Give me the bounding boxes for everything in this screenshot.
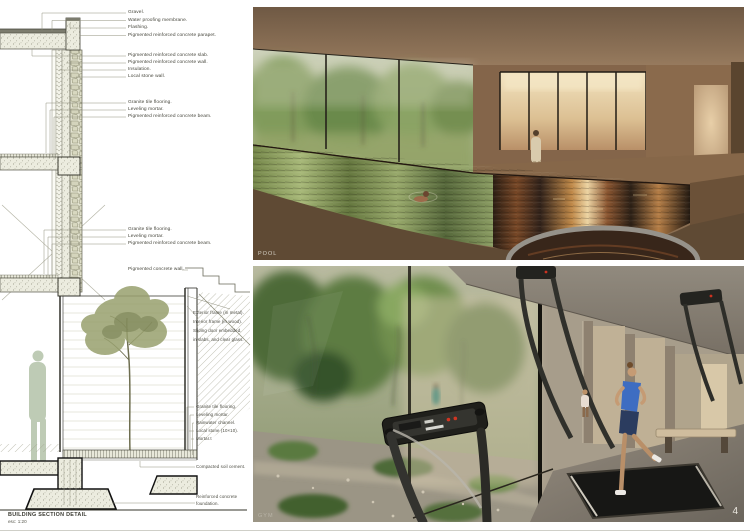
annotation-label: Interior frame (in wood).: [193, 320, 242, 324]
annotation-label: Pigmented concrete wall.: [128, 268, 184, 273]
presentation-sheet: Gravel. Water proofing membrane. Flashin…: [0, 0, 750, 531]
drawing-title: BUILDING SECTION DETAIL: [8, 512, 87, 518]
annotation-label: Reinforced concrete: [196, 495, 237, 499]
annotation-label: Leveling mortar.: [128, 235, 164, 240]
gym-render: GYM 4: [253, 266, 744, 522]
page-number: 4: [732, 506, 738, 517]
annotation-label: Compacted soil cement.: [196, 465, 245, 469]
roof-parapet: [0, 18, 80, 50]
gym-render-graphics: [253, 266, 744, 522]
annotation-label: Pigmented reinforced concrete slab.: [128, 54, 208, 59]
section-drawing-graphics: [0, 0, 252, 530]
annotation-label: Local stone (10×10).: [196, 429, 238, 433]
annotation-label: Leveling mortar.: [196, 413, 229, 417]
annotation-label: foundation.: [196, 502, 219, 506]
annotation-label: Local stone wall.: [128, 75, 165, 80]
foundations: [0, 458, 197, 509]
annotation-label: Insulation.: [128, 68, 151, 73]
annotation-label: Rainwater channel.: [196, 421, 235, 425]
pool-render: POOL: [253, 7, 744, 260]
pool-caption: POOL: [258, 251, 277, 257]
annotation-label: Mortar.t: [196, 437, 212, 441]
drawing-scale: esc: 1:20: [8, 519, 27, 524]
annotation-label: Flashing.: [128, 26, 148, 31]
annotation-label: Exterior frame (in metal).: [193, 311, 244, 315]
annotation-label: Gravel.: [128, 11, 144, 16]
annotation-label: in slabs, and clear glass.: [193, 338, 244, 342]
annotation-label: Granite tile flooring.: [128, 228, 172, 233]
annotation-label: Pigmented reinforced concrete beam.: [128, 115, 212, 120]
tree: [81, 286, 169, 452]
annotation-label: Leveling mortar.: [128, 108, 164, 113]
annotation-label: Pigmented reinforced concrete beam.: [128, 242, 212, 247]
building-section-detail: Gravel. Water proofing membrane. Flashin…: [0, 0, 252, 530]
annotation-label: Sliding door embedded.: [193, 329, 242, 333]
gym-caption: GYM: [258, 513, 274, 519]
annotation-label: Granite tile flooring.: [196, 405, 236, 409]
ground-floor-assembly: [0, 444, 197, 460]
mid-mullion: [408, 266, 411, 488]
gym-window: [253, 266, 542, 522]
pool-render-graphics: [253, 7, 744, 260]
annotation-label: Pigmented reinforced concrete wall.: [128, 61, 208, 66]
annotation-label: Water proofing membrane.: [128, 19, 187, 24]
annotation-label: Granite tile flooring.: [128, 101, 172, 106]
annotation-label: Pigmented reinforced concrete parapet.: [128, 34, 216, 39]
